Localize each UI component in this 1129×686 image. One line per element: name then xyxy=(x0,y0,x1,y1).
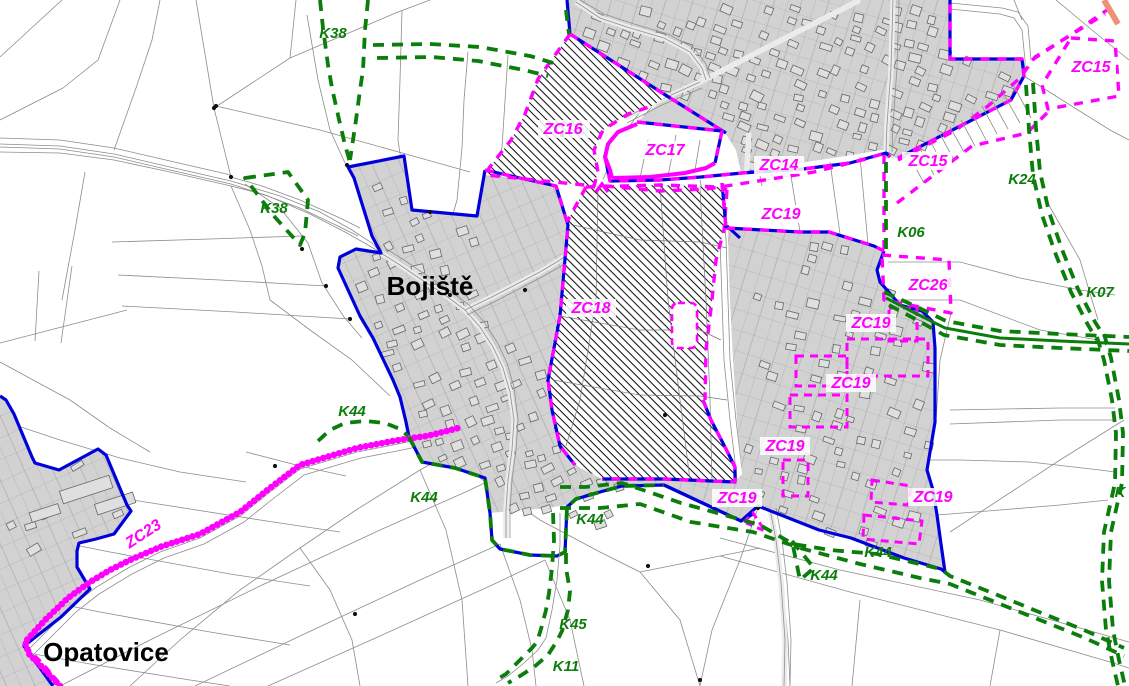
svg-text:ZC19: ZC19 xyxy=(716,490,756,507)
svg-text:K11: K11 xyxy=(553,658,579,675)
svg-text:Bojiště: Bojiště xyxy=(387,271,474,301)
svg-text:ZC16: ZC16 xyxy=(542,121,582,138)
svg-text:K44: K44 xyxy=(810,567,838,584)
svg-text:K24: K24 xyxy=(1008,171,1036,188)
svg-text:ZC26: ZC26 xyxy=(907,277,947,294)
svg-text:ZC19: ZC19 xyxy=(830,375,870,392)
svg-text:K44: K44 xyxy=(410,489,438,506)
svg-text:K45: K45 xyxy=(559,616,587,633)
svg-text:ZC15: ZC15 xyxy=(907,153,948,170)
svg-text:ZC19: ZC19 xyxy=(850,315,890,332)
svg-text:ZC14: ZC14 xyxy=(758,157,798,174)
svg-text:K38: K38 xyxy=(319,25,347,42)
svg-text:ZC17: ZC17 xyxy=(644,142,685,159)
svg-text:ZC19: ZC19 xyxy=(764,438,804,455)
svg-text:K44: K44 xyxy=(338,403,366,420)
svg-text:ZC19: ZC19 xyxy=(912,489,952,506)
svg-text:K: K xyxy=(1115,484,1127,501)
svg-text:ZC18: ZC18 xyxy=(570,300,610,317)
svg-text:K06: K06 xyxy=(897,224,925,241)
svg-text:ZC19: ZC19 xyxy=(760,206,800,223)
svg-text:Opatovice: Opatovice xyxy=(43,637,169,667)
svg-text:K44: K44 xyxy=(864,544,892,561)
svg-text:K07: K07 xyxy=(1086,284,1114,301)
svg-text:K38: K38 xyxy=(260,200,288,217)
svg-text:ZC15: ZC15 xyxy=(1070,59,1111,76)
svg-text:K44: K44 xyxy=(576,511,604,528)
